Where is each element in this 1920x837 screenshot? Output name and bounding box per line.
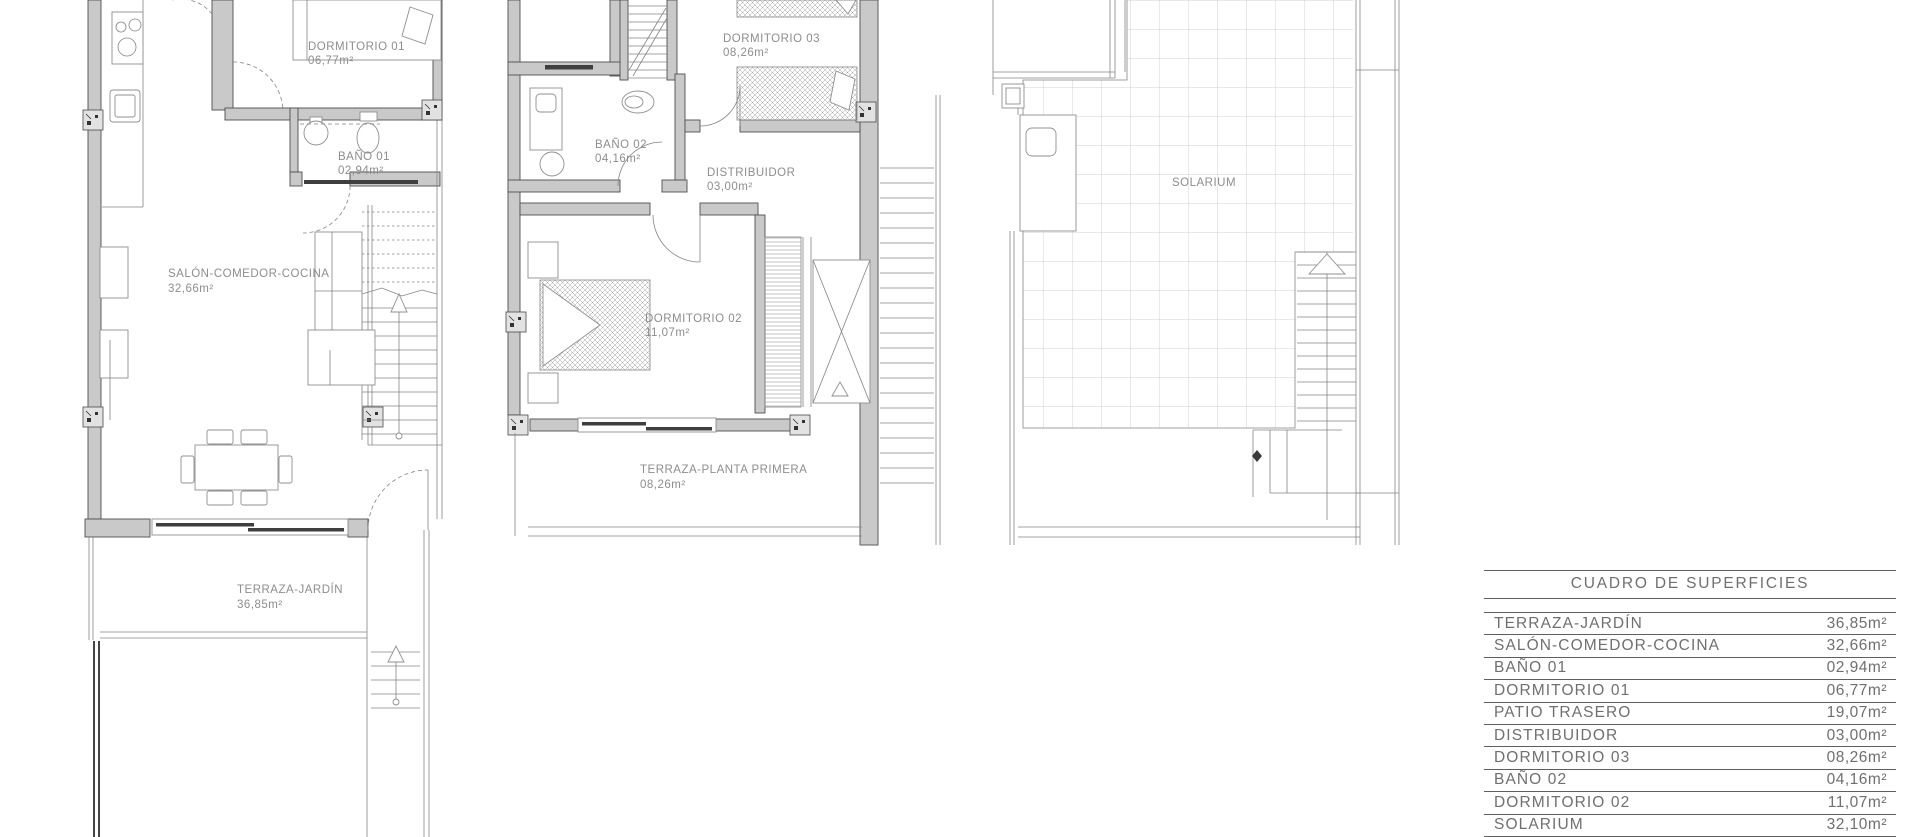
room-area-terraza-primera: 08,26m²	[640, 479, 686, 491]
interior-staircase	[362, 212, 437, 440]
table-row: BAÑO 01 02,94m²	[1484, 658, 1896, 680]
row-value: 04,16m²	[1827, 771, 1887, 789]
row-value: 02,94m²	[1827, 659, 1887, 677]
shower-vanity-icon	[530, 88, 562, 150]
table-row: TERRAZA-JARDÍN 36,85m²	[1484, 613, 1896, 635]
room-label-bano-01: BAÑO 01	[338, 150, 390, 163]
row-value: 08,26m²	[1827, 749, 1887, 767]
patio-stair	[371, 646, 420, 708]
bedroom-03-furniture	[737, 0, 857, 120]
table-row: PATIO TRASERO 19,07m²	[1484, 703, 1896, 725]
row-label: DORMITORIO 03	[1494, 749, 1630, 767]
row-value: 11,07m²	[1828, 794, 1887, 812]
room-label-distribuidor: DISTRIBUIDOR	[707, 167, 795, 179]
kitchen	[100, 0, 143, 420]
washbasin-icon	[540, 152, 564, 176]
room-area-dormitorio-03: 08,26m²	[723, 47, 769, 59]
surface-table-title: CUADRO DE SUPERFICIES	[1484, 570, 1896, 599]
room-area-distribuidor: 03,00m²	[707, 181, 753, 193]
room-area-salon: 32,66m²	[168, 283, 214, 295]
rear-patio	[94, 641, 420, 837]
room-area-bano-02: 04,16m²	[595, 153, 641, 165]
first-floor-plan: DORMITORIO 03 08,26m² BAÑO 02 04,16m² DI…	[500, 0, 950, 580]
toilet-icon	[622, 91, 654, 113]
solarium-plan: SOLARIUM	[985, 0, 1405, 560]
chimney-icon	[1002, 84, 1024, 108]
floorplan-sheet: DORMITORIO 01 06,77m² BAÑO 01 02,94m² SA…	[0, 0, 1920, 837]
stair-landing	[1252, 430, 1360, 497]
room-label-dormitorio-01: DORMITORIO 01	[308, 41, 405, 53]
row-label: BAÑO 02	[1494, 771, 1567, 789]
solarium-label-group: SOLARIUM	[1172, 177, 1236, 189]
stove-icon	[112, 12, 143, 64]
row-value: 32,66m²	[1827, 637, 1887, 655]
row-label: PATIO TRASERO	[1494, 704, 1631, 722]
room-label-dormitorio-02: DORMITORIO 02	[645, 313, 742, 325]
first-terrace	[515, 418, 862, 536]
table-row: DORMITORIO 03 08,26m²	[1484, 747, 1896, 769]
row-label: TERRAZA-JARDÍN	[1494, 615, 1643, 633]
room-label-terraza-primera: TERRAZA-PLANTA PRIMERA	[640, 464, 807, 476]
room-label-dormitorio-03: DORMITORIO 03	[723, 33, 820, 45]
table-row: DISTRIBUIDOR 03,00m²	[1484, 725, 1896, 747]
room-area-dormitorio-02: 11,07m²	[645, 327, 690, 339]
sofa-icon	[308, 232, 375, 385]
row-label: SOLARIUM	[1494, 816, 1584, 834]
room-area-bano-01: 02,94m²	[338, 165, 384, 177]
row-value: 19,07m²	[1827, 704, 1887, 722]
table-row: SALÓN-COMEDOR-COCINA 32,66m²	[1484, 635, 1896, 657]
sliding-window	[152, 519, 348, 535]
dining-table	[181, 430, 292, 505]
toilet-icon	[357, 112, 379, 153]
kitchen-sink-icon	[110, 90, 140, 122]
room-label-solarium: SOLARIUM	[1172, 177, 1236, 189]
terrace-garden	[89, 530, 429, 837]
room-label-salon: SALÓN-COMEDOR-COCINA	[168, 267, 329, 280]
row-label: DISTRIBUIDOR	[1494, 727, 1618, 745]
washbasin-icon	[304, 117, 328, 145]
ground-floor-plan: DORMITORIO 01 06,77m² BAÑO 01 02,94m² SA…	[60, 0, 460, 837]
room-area-terraza-jardin: 36,85m²	[237, 599, 283, 611]
table-row: DORMITORIO 02 11,07m²	[1484, 792, 1896, 814]
row-value: 32,10m²	[1827, 816, 1887, 834]
row-value: 03,00m²	[1827, 727, 1887, 745]
row-label: DORMITORIO 02	[1494, 794, 1630, 812]
row-value: 36,85m²	[1827, 615, 1887, 633]
table-row: SOLARIUM 32,10m²	[1484, 815, 1896, 837]
stair-void	[813, 260, 870, 403]
exterior-staircase	[880, 95, 940, 545]
room-area-dormitorio-01: 06,77m²	[308, 55, 354, 67]
row-label: SALÓN-COMEDOR-COCINA	[1494, 637, 1720, 655]
rooftop-unit	[1020, 115, 1076, 231]
row-label: DORMITORIO 01	[1494, 682, 1630, 700]
room-label-terraza-jardin: TERRAZA-JARDÍN	[237, 583, 343, 596]
table-row: DORMITORIO 01 06,77m²	[1484, 680, 1896, 702]
upper-staircase	[628, 6, 667, 78]
row-value: 06,77m²	[1827, 682, 1887, 700]
room-label-bano-02: BAÑO 02	[595, 138, 647, 151]
table-row: BAÑO 02 04,16m²	[1484, 770, 1896, 792]
wardrobe-icon	[765, 237, 801, 407]
surface-table-rows: TERRAZA-JARDÍN 36,85m² SALÓN-COMEDOR-COC…	[1484, 612, 1896, 837]
surface-table: CUADRO DE SUPERFICIES TERRAZA-JARDÍN 36,…	[1484, 570, 1896, 837]
row-label: BAÑO 01	[1494, 659, 1567, 677]
